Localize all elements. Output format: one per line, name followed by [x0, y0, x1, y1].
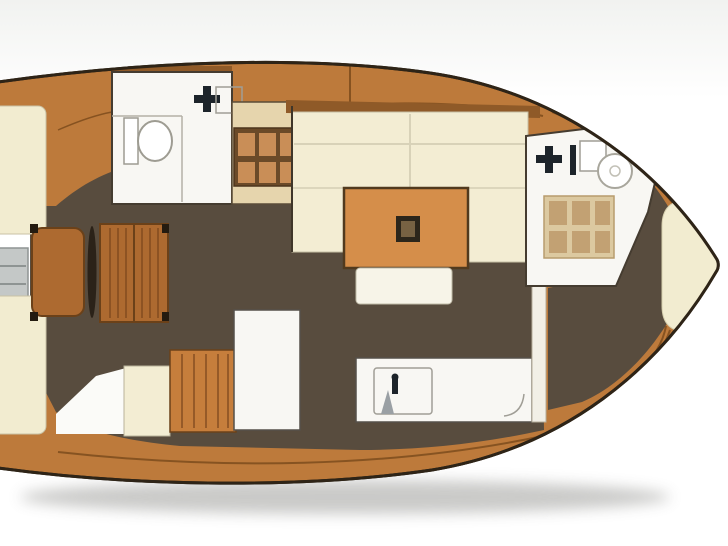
salon-table [344, 188, 468, 268]
shower-grate-icon [544, 196, 614, 258]
cockpit-bench-port [0, 106, 46, 234]
yacht-floorplan [0, 0, 728, 546]
hull-shadow [20, 480, 670, 514]
stove-unit [170, 350, 236, 432]
salon-ottoman [356, 268, 452, 304]
faucet-icon [392, 374, 399, 395]
shower-grate-icon [234, 128, 296, 186]
galley-tall-unit [234, 310, 300, 430]
steering-wheel-icon [88, 226, 97, 318]
cockpit-bench-starboard [0, 296, 46, 434]
galley-seat [124, 366, 170, 436]
door-hinge [570, 145, 576, 175]
galley-counter [356, 358, 532, 422]
swim-ladder-icon [0, 248, 28, 302]
toilet-icon [124, 118, 172, 164]
helm-seat [32, 228, 84, 316]
floorplan-canvas [0, 0, 728, 546]
